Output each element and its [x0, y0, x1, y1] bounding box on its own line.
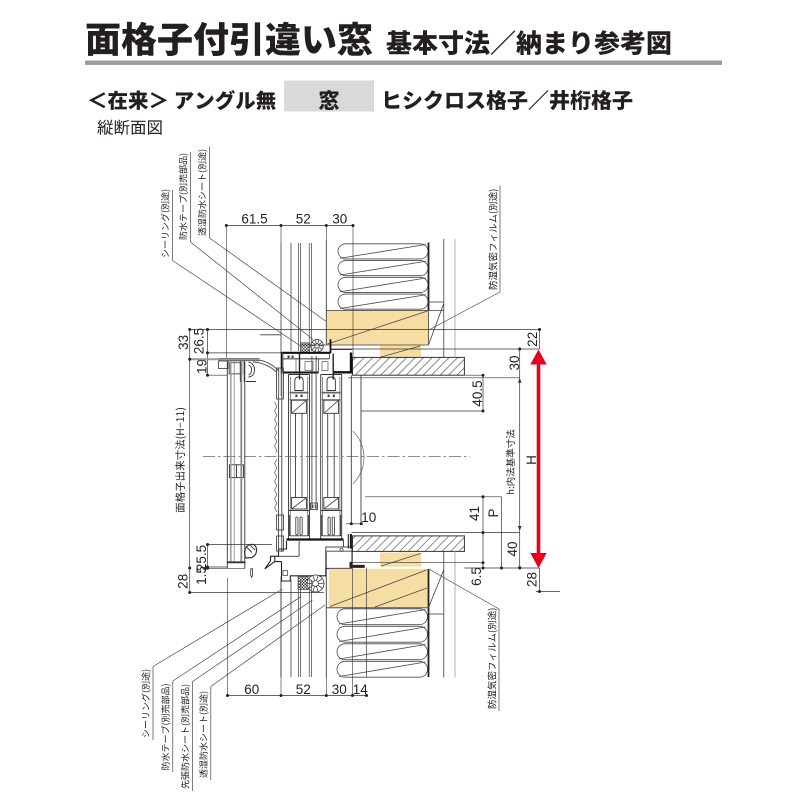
svg-text:10: 10	[361, 510, 376, 525]
svg-text:26.5: 26.5	[192, 328, 207, 354]
svg-text:60: 60	[244, 682, 259, 697]
svg-text:6.5: 6.5	[469, 567, 484, 586]
svg-text:52: 52	[296, 682, 311, 697]
svg-text:61.5: 61.5	[241, 212, 267, 227]
svg-text:33: 33	[176, 335, 191, 350]
svg-text:41: 41	[467, 506, 482, 521]
svg-text:40: 40	[505, 541, 520, 556]
svg-text:28: 28	[525, 572, 540, 587]
svg-text:30: 30	[332, 682, 347, 697]
svg-text:22: 22	[525, 332, 540, 347]
svg-text:P: P	[486, 508, 501, 517]
svg-text:28: 28	[176, 574, 191, 589]
svg-text:52: 52	[296, 212, 311, 227]
svg-text:30: 30	[332, 212, 347, 227]
